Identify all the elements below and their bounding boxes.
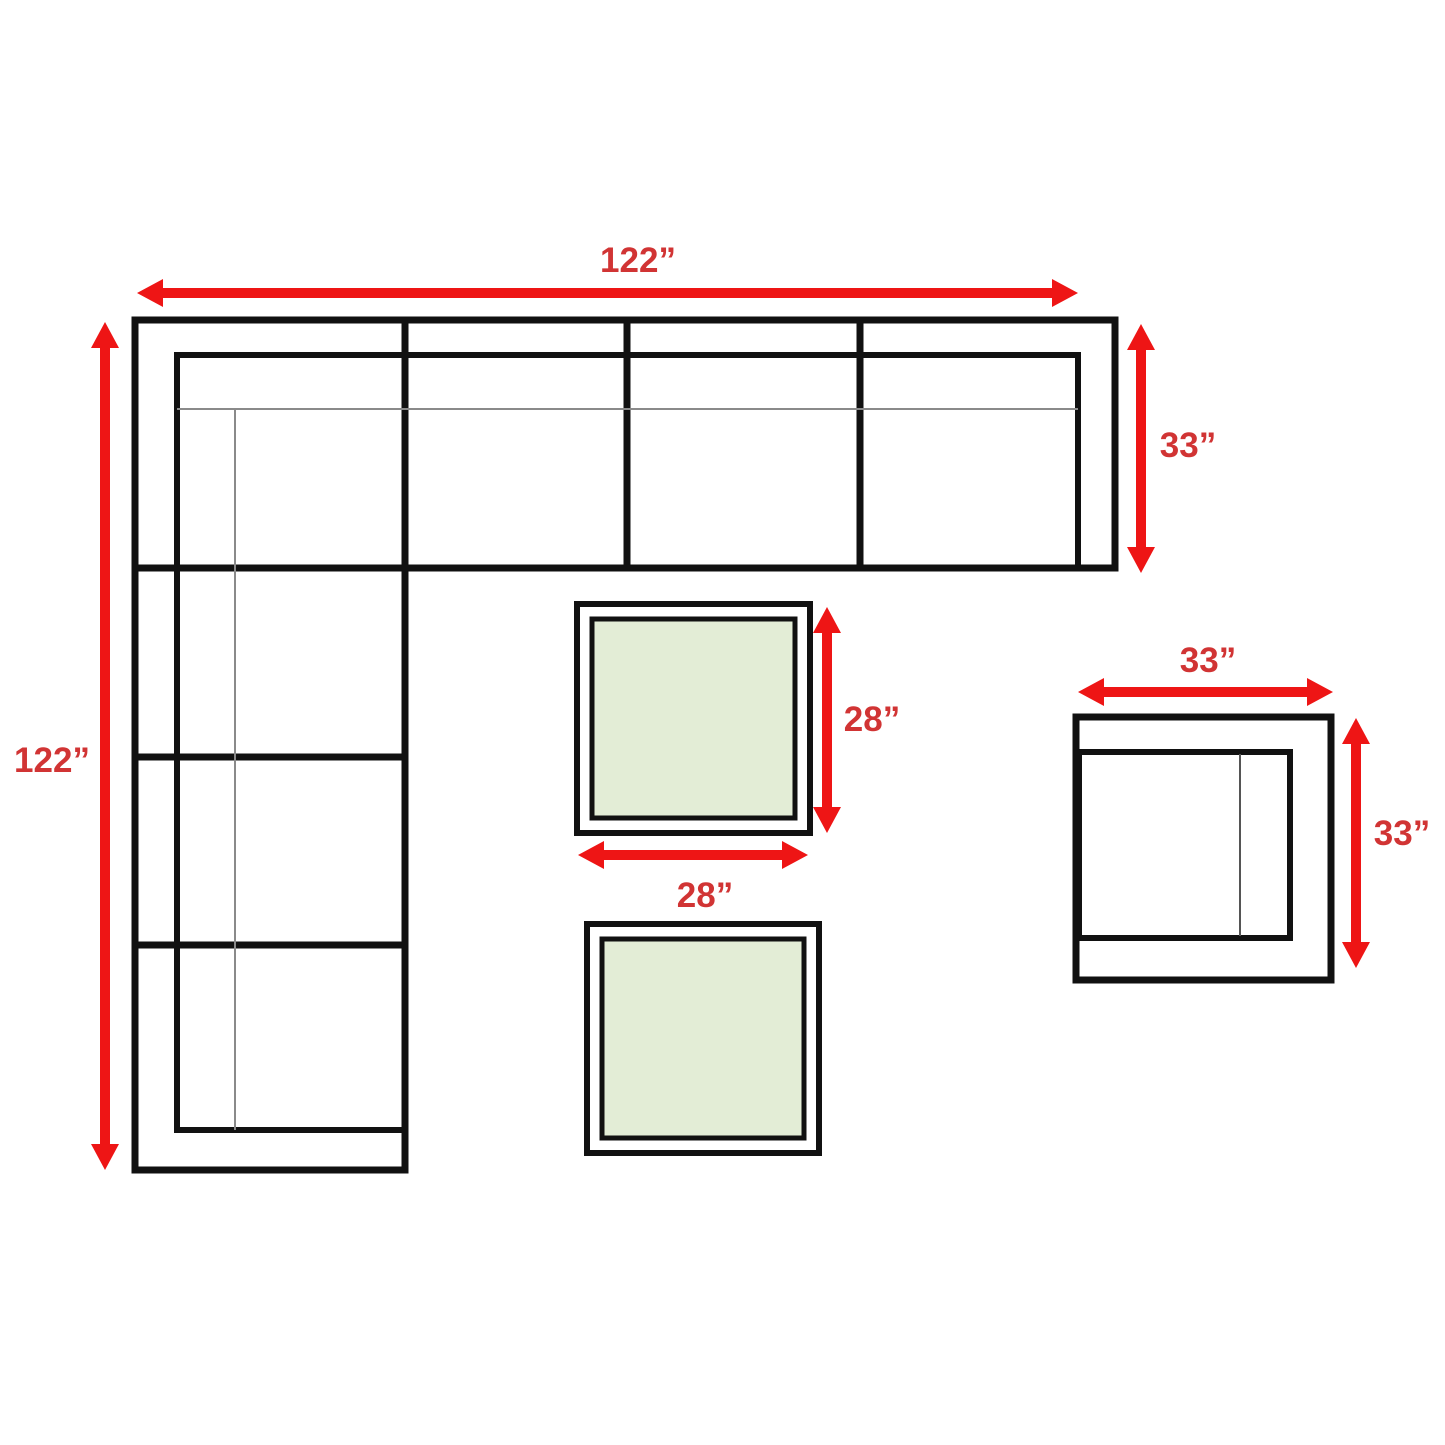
furniture-dimension-diagram: 122” 122” 33” 28” 28” 33” 33”	[0, 0, 1445, 1445]
dimension-arrow-sofa-width	[137, 279, 1078, 307]
dimension-label-sofa-width: 122”	[600, 241, 676, 280]
dimension-arrow-chair-depth	[1342, 718, 1370, 968]
dimension-label-chair-width: 33”	[1180, 641, 1236, 680]
dimension-label-chair-depth: 33”	[1374, 814, 1430, 853]
arrow-head-left	[1078, 678, 1104, 706]
dimension-arrow-table-depth	[813, 607, 841, 833]
arrow-head-right	[782, 841, 808, 869]
arrow-head-down	[1127, 547, 1155, 573]
dimension-arrow-sofa-height	[91, 322, 119, 1170]
dimension-label-sofa-height: 122”	[14, 741, 90, 780]
arrow-head-left	[578, 841, 604, 869]
dimension-label-table-width: 28”	[677, 876, 733, 915]
coffee-table-top	[577, 604, 810, 833]
dimension-label-sofa-depth: 33”	[1160, 426, 1216, 465]
arrow-head-down	[91, 1144, 119, 1170]
chair-seat	[1079, 752, 1290, 938]
dimension-arrow-table-width	[578, 841, 808, 869]
table-glass-top	[592, 619, 795, 818]
dimension-arrow-chair-width	[1078, 678, 1333, 706]
coffee-table-bottom	[587, 924, 819, 1153]
arrow-head-right	[1307, 678, 1333, 706]
arrow-head-up	[91, 322, 119, 348]
arrow-head-left	[137, 279, 163, 307]
arrow-head-down	[813, 807, 841, 833]
arrow-head-down	[1342, 942, 1370, 968]
arrow-head-up	[1127, 324, 1155, 350]
dimension-label-table-depth: 28”	[844, 700, 900, 739]
table-glass-top	[602, 939, 804, 1138]
diagram-canvas: 122” 122” 33” 28” 28” 33” 33”	[0, 0, 1445, 1445]
arrow-head-right	[1052, 279, 1078, 307]
club-chair	[1076, 717, 1331, 980]
arrow-head-up	[1342, 718, 1370, 744]
arrow-head-up	[813, 607, 841, 633]
dimension-arrow-sofa-depth	[1127, 324, 1155, 573]
